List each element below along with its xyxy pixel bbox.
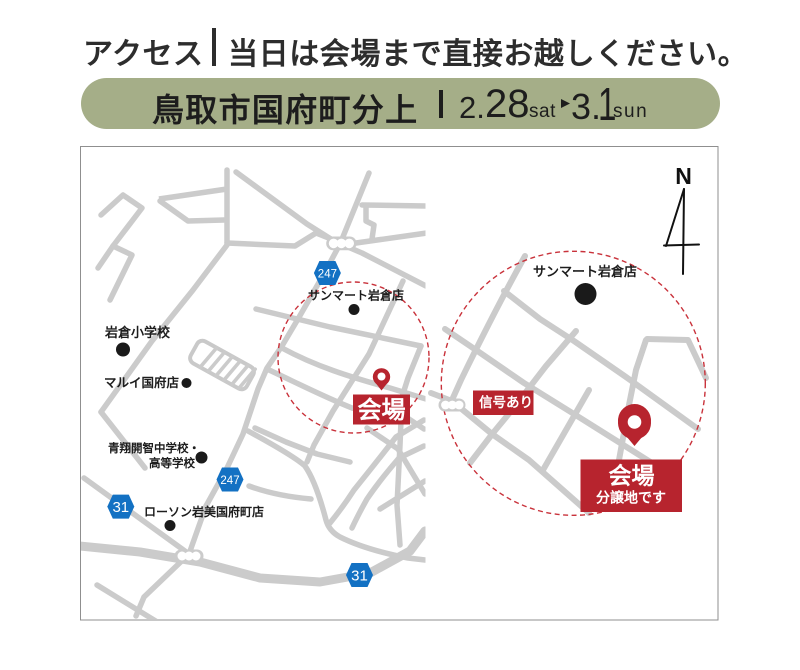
svg-text:青翔開智中学校・: 青翔開智中学校・ — [108, 441, 200, 455]
svg-text:31: 31 — [112, 499, 129, 516]
svg-text:マルイ国府店: マルイ国府店 — [104, 375, 180, 390]
svg-text:247: 247 — [318, 268, 337, 280]
svg-text:N: N — [675, 163, 692, 189]
svg-text:サンマート岩倉店: サンマート岩倉店 — [533, 264, 637, 279]
svg-text:高等学校: 高等学校 — [149, 456, 195, 470]
svg-text:会場: 会場 — [358, 396, 406, 424]
svg-text:岩倉小学校: 岩倉小学校 — [104, 325, 171, 340]
svg-text:ローソン岩美国府町店: ローソン岩美国府町店 — [144, 504, 264, 519]
svg-text:247: 247 — [220, 475, 239, 487]
svg-text:31: 31 — [351, 567, 368, 584]
svg-text:サンマート岩倉店: サンマート岩倉店 — [308, 288, 404, 303]
svg-text:会場: 会場 — [609, 463, 655, 489]
svg-text:信号あり: 信号あり — [479, 394, 533, 410]
svg-text:分譲地です: 分譲地です — [596, 490, 666, 506]
